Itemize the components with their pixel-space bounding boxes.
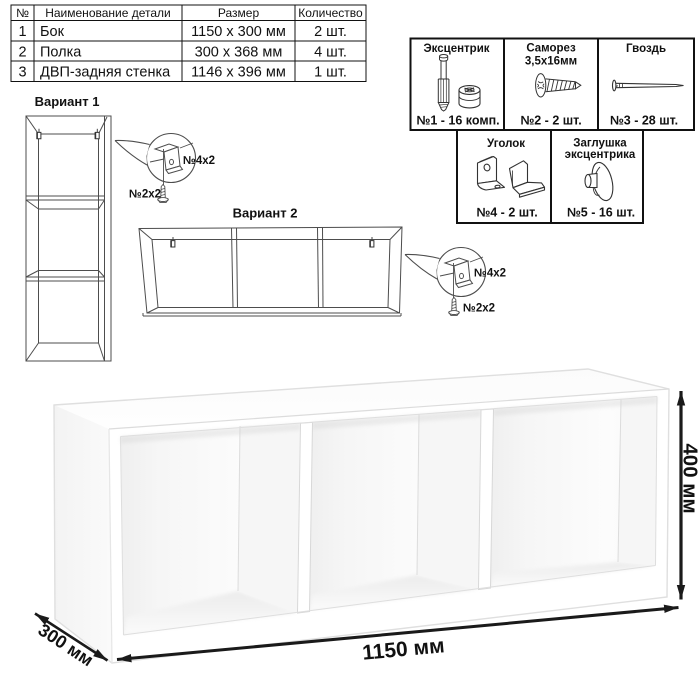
svg-text:300 x 368 мм: 300 x 368 мм [195,44,283,60]
svg-text:№5 - 16 шт.: №5 - 16 шт. [567,206,635,220]
svg-text:Количество: Количество [298,6,363,20]
svg-text:Заглушка: Заглушка [573,138,627,150]
svg-text:№3 - 28 шт.: №3 - 28 шт. [610,114,678,128]
svg-text:ДВП-задняя стенка: ДВП-задняя стенка [40,65,171,81]
svg-text:Саморез: Саморез [526,43,576,55]
svg-text:Уголок: Уголок [487,138,525,150]
svg-text:Бок: Бок [40,24,65,40]
svg-text:№4х2: №4х2 [474,268,506,280]
svg-text:Размер: Размер [218,6,260,20]
svg-text:№1 - 16 комп.: №1 - 16 комп. [416,114,499,128]
svg-text:Наименование детали: Наименование детали [45,6,171,20]
svg-text:3: 3 [18,65,26,81]
svg-text:2 шт.: 2 шт. [314,24,347,40]
svg-text:Вариант 1: Вариант 1 [35,94,100,109]
svg-text:1146 x 396 мм: 1146 x 396 мм [191,65,286,81]
svg-text:4 шт.: 4 шт. [314,44,347,60]
svg-text:№4 - 2 шт.: №4 - 2 шт. [476,206,537,220]
svg-text:2: 2 [18,44,26,60]
svg-text:400 мм: 400 мм [679,443,700,513]
svg-text:№2х2: №2х2 [463,303,495,315]
svg-text:Эксцентрик: Эксцентрик [423,43,489,55]
svg-text:№4х2: №4х2 [183,155,215,167]
svg-text:1: 1 [18,24,26,40]
svg-text:№2 - 2 шт.: №2 - 2 шт. [520,114,581,128]
svg-text:3,5х16мм: 3,5х16мм [525,56,577,68]
svg-text:1 шт.: 1 шт. [314,65,347,81]
svg-text:Вариант 2: Вариант 2 [233,206,298,221]
svg-text:Гвоздь: Гвоздь [626,43,666,55]
svg-text:1150 x 300 мм: 1150 x 300 мм [191,24,286,40]
svg-text:№2х2: №2х2 [129,189,161,201]
svg-text:№: № [16,6,29,20]
svg-text:эксцентрика: эксцентрика [565,149,636,161]
svg-text:Полка: Полка [40,44,82,60]
svg-text:1150 мм: 1150 мм [361,634,445,665]
